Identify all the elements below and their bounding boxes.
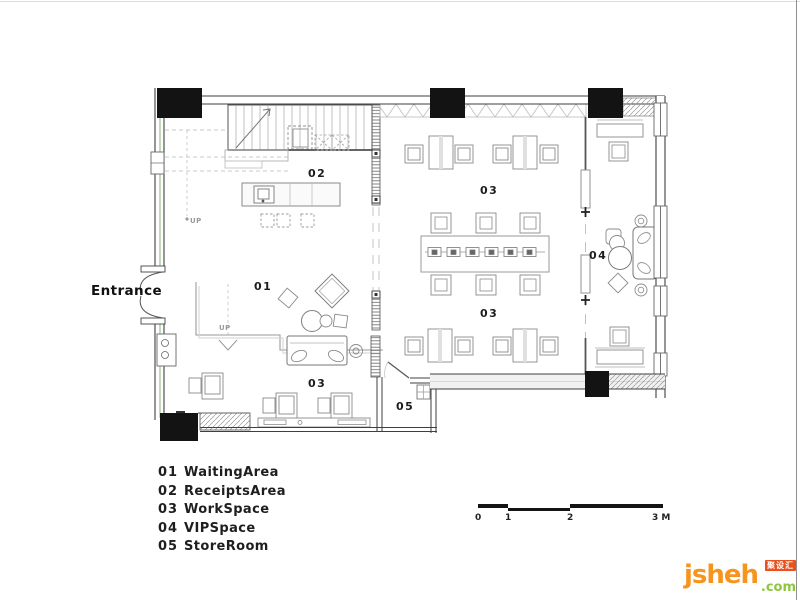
room-label-waiting-area: 01 [254,280,272,293]
scale-tick: 2 [567,513,573,523]
room-label-store-room: 05 [396,400,414,413]
legend-text: ReceiptsArea [184,484,286,499]
jsheh-logo: jsheh 聚设汇 .com [684,558,796,596]
room-label-vip-space: 04 [589,249,607,262]
scale-tick: 1 [505,513,511,523]
room-label-workspace-left: 03 [308,377,326,390]
scale-bar-segment [478,504,508,508]
workspace-desks-top [405,136,558,169]
logo-wordmark: jsheh [684,560,758,590]
waiting-area-furniture [278,274,362,365]
legend-item-store-room: 05 StoreRoom [158,539,286,558]
vip-divider [581,117,590,374]
floor-plan-drawing [0,0,800,600]
legend-item-waiting-area: 01 WaitingArea [158,465,286,484]
logo-badge: 聚设汇 [765,560,796,571]
up-path-dot [185,217,188,220]
legend-code: 01 [158,465,184,480]
legend-text: VIPSpace [184,521,256,536]
partition-wall [371,105,380,377]
legend-item-receipts-area: 02 ReceiptsArea [158,484,286,503]
up-arrow [219,340,237,350]
workspace-desks-bottom [405,329,558,362]
legend-text: WorkSpace [184,502,269,517]
legend-code: 03 [158,502,184,517]
truss-band [380,104,586,117]
entrance-label: Entrance [91,283,162,299]
legend-item-workspace: 03 WorkSpace [158,502,286,521]
vip-furniture [595,120,658,367]
legend-code: 05 [158,539,184,554]
legend-item-vip-space: 04 VIPSpace [158,521,286,540]
workspace-central-table [421,213,549,295]
legend-text: WaitingArea [184,465,279,480]
legend: 01 WaitingArea 02 ReceiptsArea 03 WorkSp… [158,465,286,558]
up-label-stairs: UP [190,217,202,225]
legend-text: StoreRoom [184,539,269,554]
room-label-workspace-bottom: 03 [480,307,498,320]
store-room [377,362,436,433]
legend-code: 04 [158,521,184,536]
room-label-workspace-top: 03 [480,184,498,197]
stairs [225,105,372,168]
room-label-receipts-area: 02 [308,167,326,180]
scale-bar-segment [508,508,570,512]
scale-bar-segment [570,504,663,508]
floor-plan-sheet: 01 02 03 03 03 04 05 Entrance UP UP 01 W… [0,0,800,600]
legend-code: 02 [158,484,184,499]
scale-tick: 3 M [652,513,670,523]
reception-desk [242,183,340,227]
scale-tick: 0 [475,513,481,523]
up-label-path: UP [219,324,231,332]
logo-tld: .com [761,580,796,595]
